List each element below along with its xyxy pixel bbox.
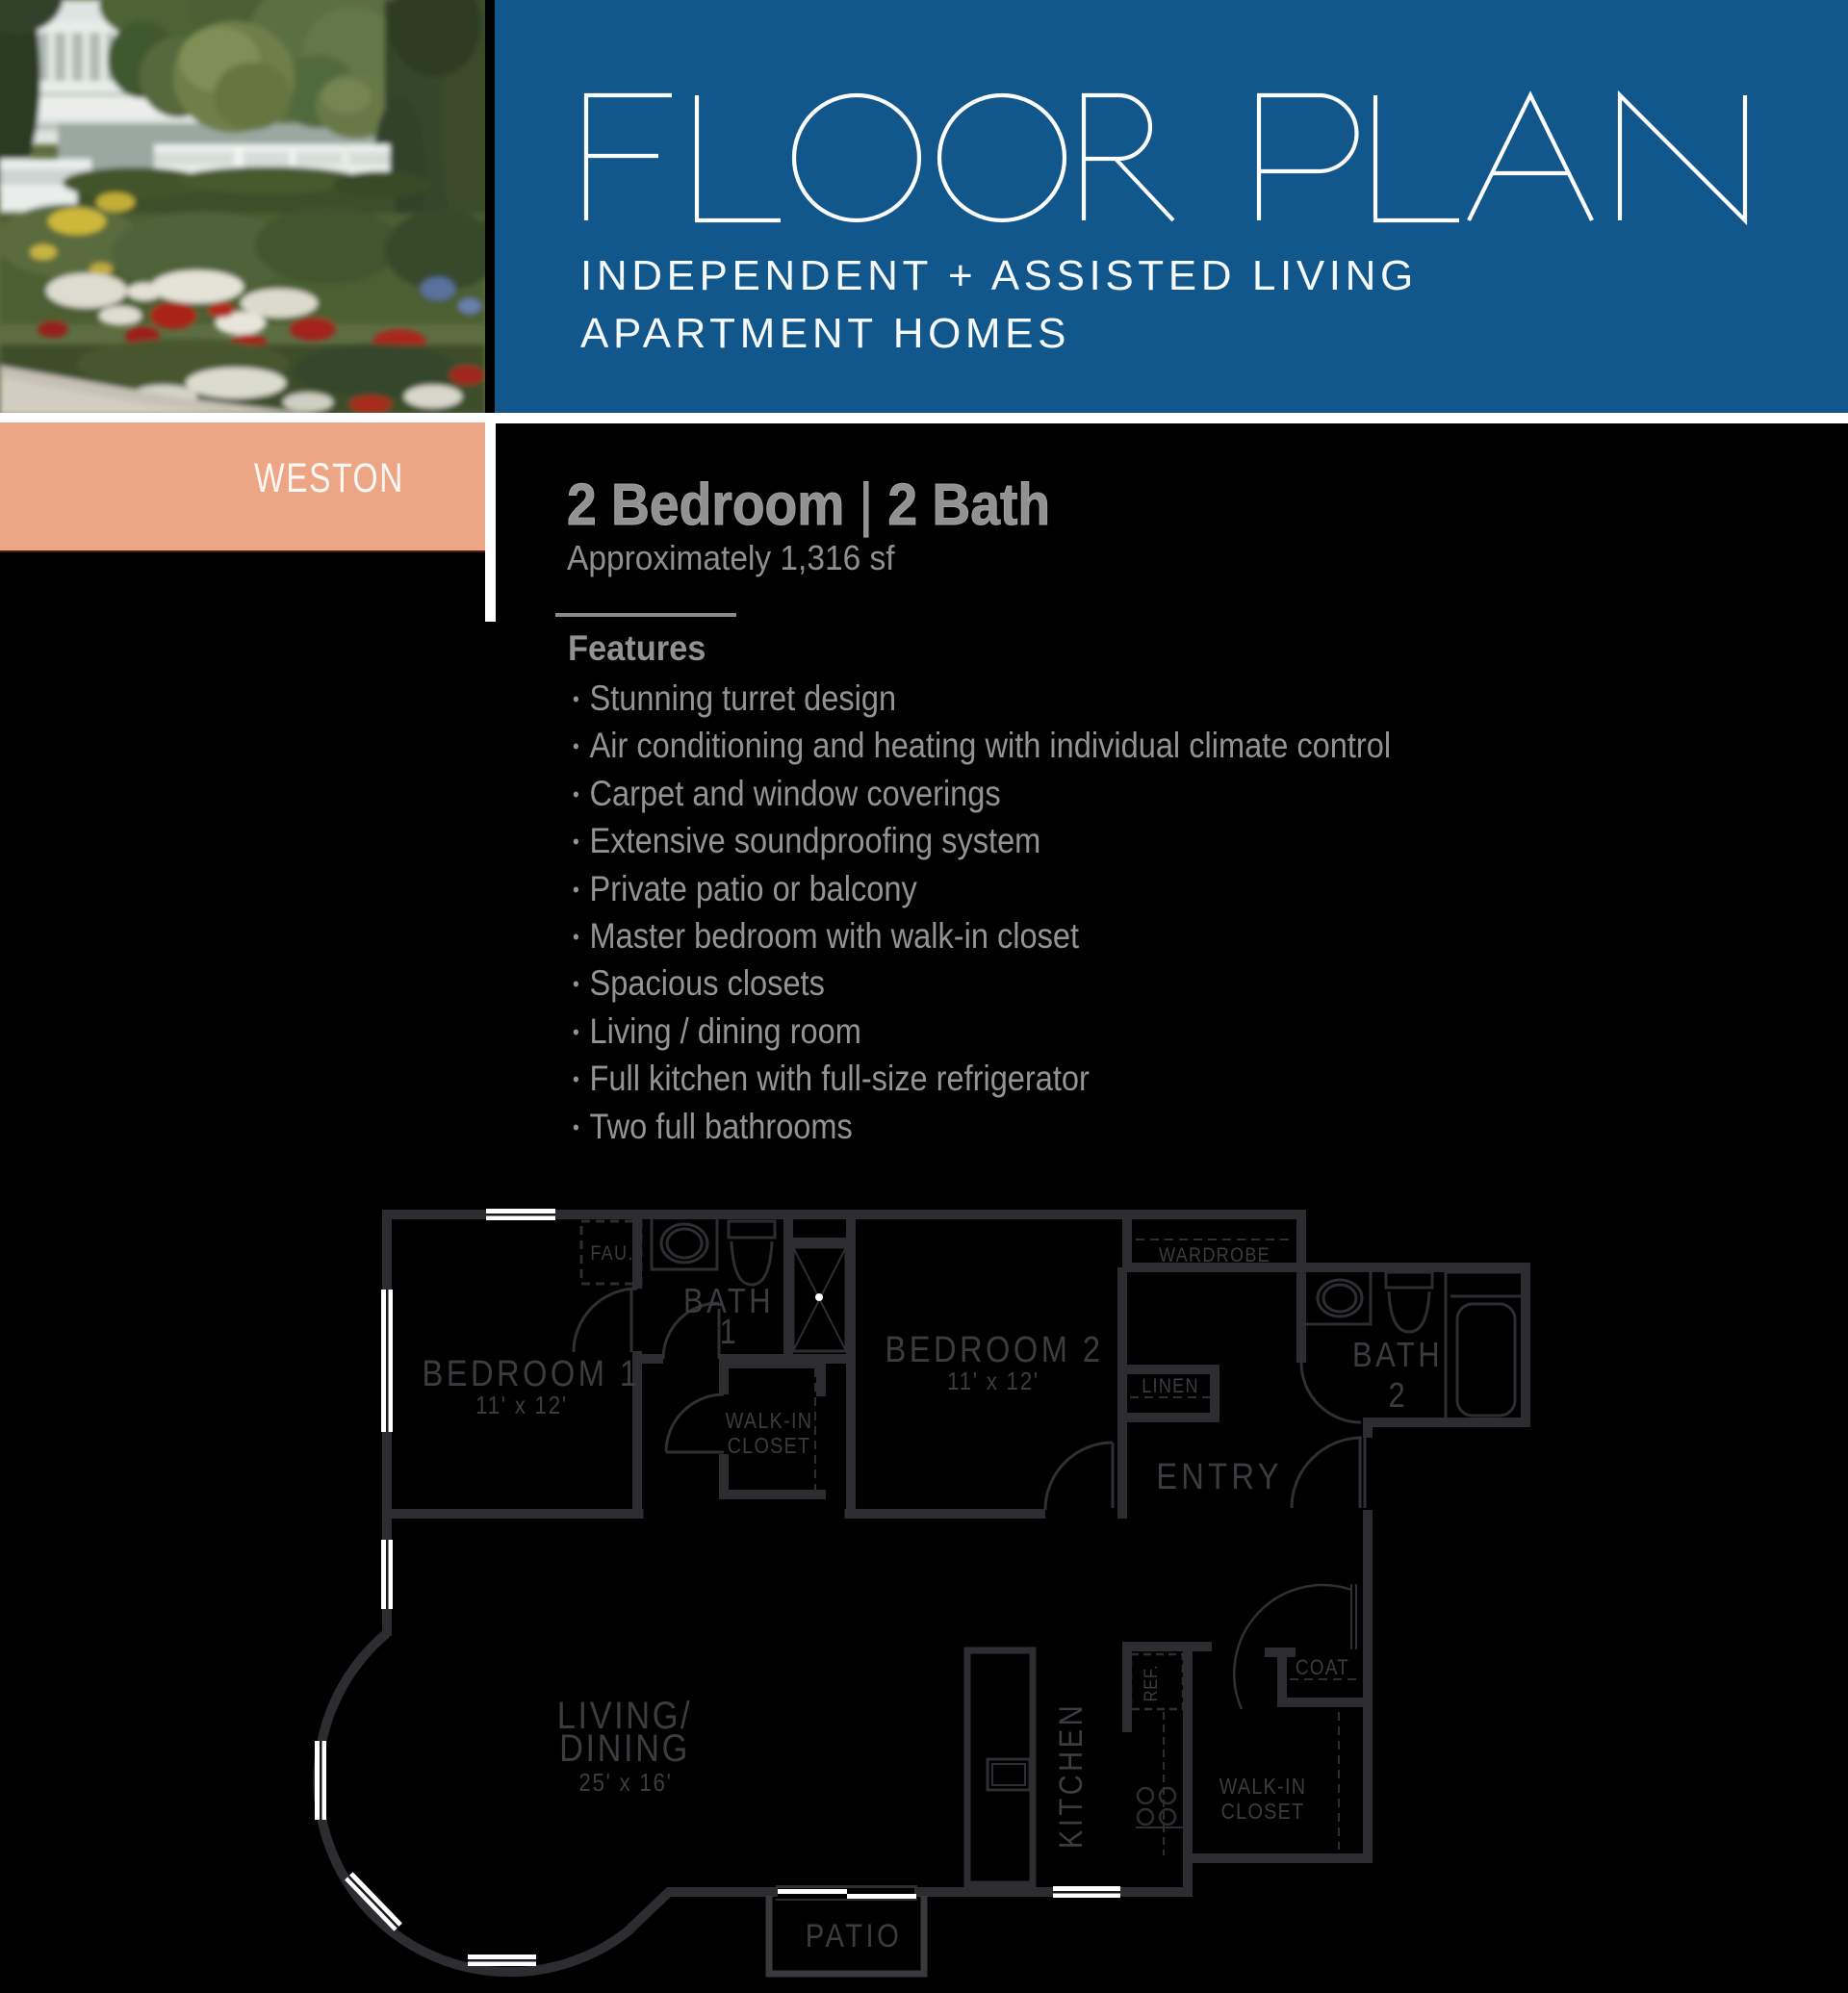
svg-text:25' x 16': 25' x 16' [578, 1769, 672, 1797]
svg-text:COAT: COAT [1296, 1656, 1349, 1680]
svg-text:PATIO: PATIO [806, 1917, 903, 1955]
svg-text:WARDROBE: WARDROBE [1159, 1244, 1270, 1267]
svg-text:11' x 12': 11' x 12' [475, 1392, 568, 1419]
svg-text:1: 1 [720, 1314, 738, 1352]
svg-text:WALK-IN: WALK-IN [1219, 1775, 1307, 1800]
svg-text:2: 2 [1389, 1377, 1407, 1416]
svg-text:CLOSET: CLOSET [1221, 1800, 1305, 1825]
svg-text:BATH: BATH [1352, 1337, 1443, 1375]
svg-text:ENTRY: ENTRY [1156, 1456, 1283, 1497]
svg-text:LINEN: LINEN [1142, 1375, 1199, 1398]
svg-text:KITCHEN: KITCHEN [1052, 1702, 1090, 1849]
svg-text:WALK-IN: WALK-IN [726, 1409, 813, 1434]
svg-text:BEDROOM 2: BEDROOM 2 [885, 1329, 1104, 1370]
svg-text:FAU.: FAU. [590, 1242, 633, 1265]
svg-text:BEDROOM 1: BEDROOM 1 [423, 1353, 641, 1394]
svg-text:CLOSET: CLOSET [728, 1434, 811, 1459]
svg-text:REF.: REF. [1141, 1665, 1161, 1702]
svg-text:DINING: DINING [559, 1726, 690, 1770]
svg-text:11' x 12': 11' x 12' [947, 1367, 1039, 1395]
